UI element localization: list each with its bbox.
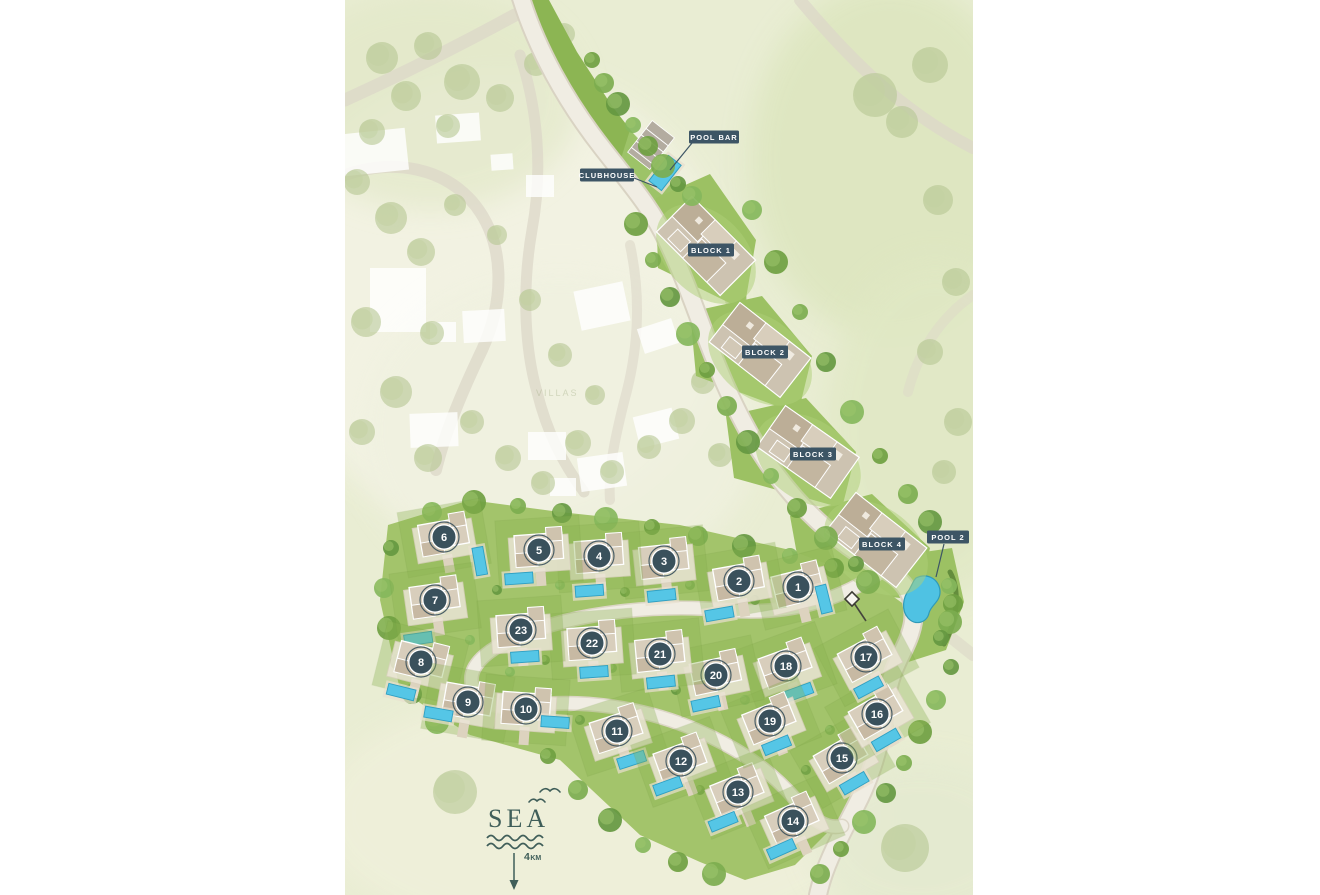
label-text: CLUBHOUSE [579,171,636,180]
villa-pool [572,582,607,601]
masterplan-map: VILLAS [0,0,1320,895]
villa-number: 3 [661,556,667,568]
villa-number: 21 [654,649,666,661]
label-text: BLOCK 2 [745,348,785,357]
villa-number: 2 [736,576,742,588]
villa-pool [644,586,680,606]
existing-building [528,432,566,460]
villa-number: 13 [732,787,744,799]
villa-number: 15 [836,753,848,765]
villa-number: 23 [515,625,527,637]
villa-number: 7 [432,595,438,607]
villa-number: 17 [860,652,872,664]
label-text: POOL BAR [690,133,737,142]
villa-number: 20 [710,670,722,682]
villa-number: 11 [611,726,623,738]
villa-number: 6 [441,532,447,544]
label-block-1[interactable]: BLOCK 1 [688,244,734,257]
label-text: BLOCK 3 [793,450,833,459]
villa-pool [577,663,612,682]
existing-building [490,153,513,170]
villa-number: 22 [586,638,598,650]
villa-10[interactable]: 10 [482,674,576,748]
existing-building [526,175,554,197]
label-block-2[interactable]: BLOCK 2 [742,346,788,359]
sea-label: SEA [488,804,549,833]
existing-building [462,309,506,343]
label-block-3[interactable]: BLOCK 3 [790,448,836,461]
villa-pool [643,672,679,692]
villa-number: 16 [871,709,883,721]
villa-pool [501,569,536,588]
label-block-4[interactable]: BLOCK 4 [859,538,905,551]
label-text: BLOCK 4 [862,540,902,549]
villa-number: 5 [536,545,542,557]
villa-number: 4 [596,551,603,563]
villa-number: 12 [675,756,687,768]
villa-number: 1 [795,582,801,594]
villa-number: 14 [787,816,800,828]
label-text: BLOCK 1 [691,246,731,255]
villa-pool [507,648,542,667]
villa-23[interactable]: 23 [477,595,566,669]
villa-number: 8 [418,657,424,669]
existing-building [409,412,458,448]
label-text: POOL 2 [931,533,964,542]
masterplan-page: VILLAS [0,0,1320,895]
villa-number: 10 [520,704,532,716]
villa-number: 9 [465,697,471,709]
ghost-area-label: VILLAS [536,388,579,398]
villa-number: 19 [764,716,776,728]
villa-5[interactable]: 5 [495,515,584,589]
villa-number: 18 [780,661,792,673]
